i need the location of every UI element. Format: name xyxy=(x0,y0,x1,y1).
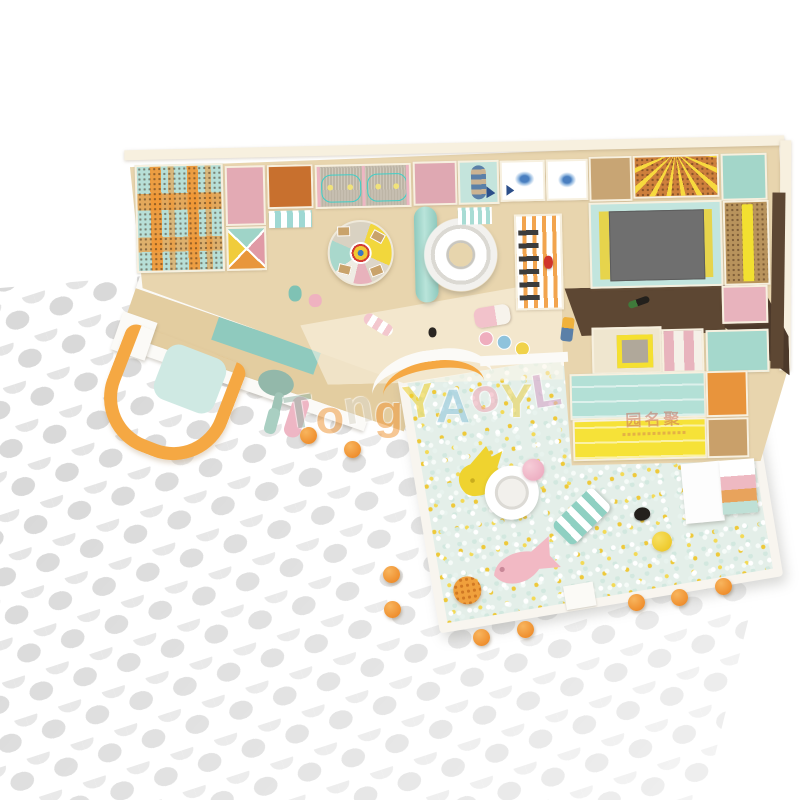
swing-track-loop-left xyxy=(321,174,362,203)
playground-render: TongYAoYL 园名聚 xyxy=(0,0,800,800)
dark-right-edge xyxy=(770,192,785,368)
stamp-text: 园名聚 xyxy=(612,405,697,432)
swing-room xyxy=(315,163,412,209)
trampoline-mat xyxy=(609,209,706,281)
wide-slide-white xyxy=(681,461,725,524)
watermark-letter: o xyxy=(315,389,345,444)
teal-room-right xyxy=(706,329,770,373)
pumpkin-stool xyxy=(383,566,400,583)
pumpkin-stool xyxy=(384,601,401,618)
splash-projection-room-1 xyxy=(500,160,546,202)
orange-room xyxy=(267,164,314,209)
watermark-letter: A xyxy=(436,378,471,433)
carousel-seat-1 xyxy=(337,226,350,236)
child-figure-red xyxy=(544,256,553,269)
colored-stairs xyxy=(719,458,758,514)
pig-toy xyxy=(309,294,322,307)
watermark-letter: n xyxy=(340,377,378,436)
swing-track-loop-right xyxy=(367,173,408,202)
sunburst-net-room xyxy=(633,154,720,199)
pumpkin-stool xyxy=(628,594,645,611)
square-trampoline xyxy=(617,334,654,368)
climb-pole-room xyxy=(458,160,500,205)
climb-net-wall xyxy=(723,200,771,286)
net-wall-yellow-stripe xyxy=(742,204,755,281)
striped-awning xyxy=(269,210,312,228)
watermark-letter: T xyxy=(281,382,319,441)
carousel-seat-4 xyxy=(337,263,352,276)
black-figurine xyxy=(428,327,436,337)
floor-piano xyxy=(514,213,564,310)
carousel-seat-2 xyxy=(370,229,386,244)
cream-platform xyxy=(591,326,662,375)
carousel-seat-3 xyxy=(369,264,385,278)
climb-pole xyxy=(471,165,487,199)
pumpkin-stool xyxy=(671,589,688,606)
pumpkin-stool xyxy=(715,578,732,595)
watermark-letter: g xyxy=(374,384,404,439)
trampoline xyxy=(589,200,724,289)
orange-room-bottom xyxy=(705,370,748,417)
pumpkin-stool xyxy=(473,629,490,646)
pink-room-right xyxy=(722,285,769,324)
sunburst-rays xyxy=(635,156,718,197)
teal-room-topright xyxy=(721,153,768,201)
splash-flag-1 xyxy=(506,185,514,196)
elephant-toy xyxy=(288,285,301,301)
stamp-watermark: 园名聚 xyxy=(612,405,697,437)
tan-room xyxy=(589,156,633,202)
pumpkin-stool xyxy=(344,441,361,458)
rainbow-climb-net xyxy=(135,163,225,273)
swing-post-right xyxy=(406,165,410,205)
pumpkin-stool xyxy=(517,621,534,638)
swing-post-left xyxy=(317,167,321,207)
carousel-hub xyxy=(349,242,371,264)
splash-projection-room-2 xyxy=(546,159,589,201)
pink-room-1 xyxy=(225,165,266,226)
pink-room-2 xyxy=(413,161,458,206)
piano-black-keys xyxy=(518,224,540,300)
watermark-letter: Y xyxy=(399,371,440,430)
tan-room-bottom xyxy=(707,417,750,458)
swing-post-mid xyxy=(362,166,366,206)
x-divider-room xyxy=(226,226,267,271)
watermark-letter: Y xyxy=(501,373,533,428)
striped-mat xyxy=(458,207,492,225)
watermark-letter: o xyxy=(466,366,504,425)
watermark-letter: L xyxy=(528,360,566,419)
flag-pennant xyxy=(486,186,495,198)
soft-rollers xyxy=(661,328,704,373)
